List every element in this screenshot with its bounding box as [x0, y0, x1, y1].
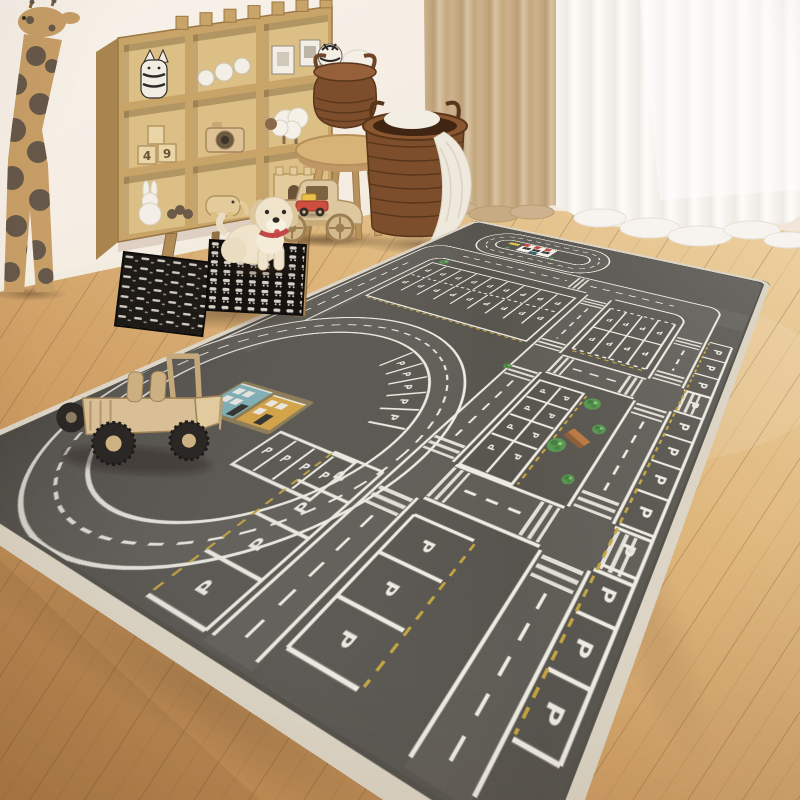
toy-jeep: [47, 336, 226, 483]
sheer-curtain: [556, 0, 800, 248]
jeep-seat: [127, 371, 144, 402]
castle-blocks: [274, 167, 314, 200]
block-letter: 9: [163, 147, 171, 161]
windshield-frame: [166, 354, 202, 398]
playroom-photo: 4 9: [0, 0, 800, 800]
block-letter: 4: [143, 149, 151, 163]
blanket-inside: [384, 109, 440, 129]
jeep-seat: [150, 371, 167, 402]
stool-basket: [314, 44, 377, 128]
